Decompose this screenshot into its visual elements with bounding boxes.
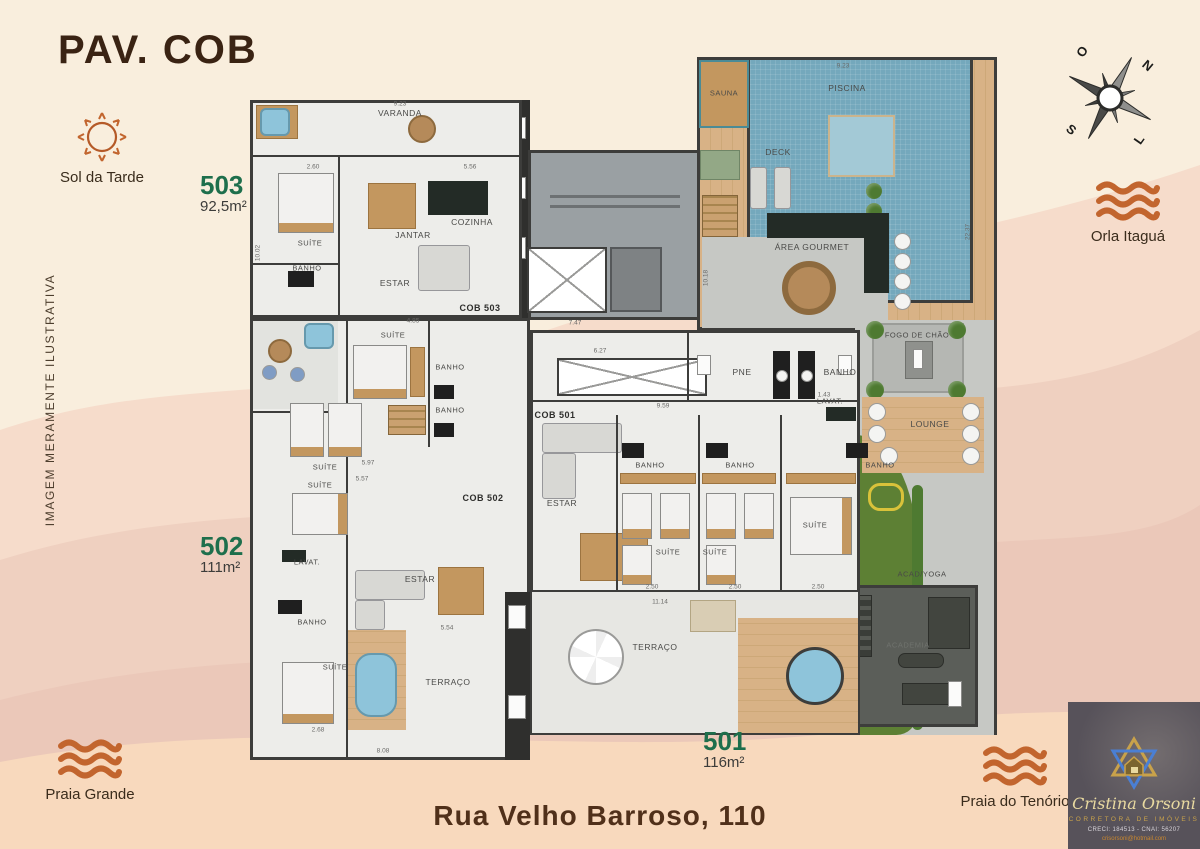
wall xyxy=(780,415,782,590)
wall xyxy=(338,155,340,315)
jacuzzi-502 xyxy=(304,323,334,349)
closet xyxy=(620,473,696,484)
room-label-estar-502: ESTAR xyxy=(405,574,435,584)
dim-label: 11.14 xyxy=(652,599,668,606)
house-icon xyxy=(1125,757,1143,775)
dim-label: 2.50 xyxy=(812,584,825,591)
dim-label: 8.08 xyxy=(377,748,390,755)
room-label-area-gourmet: ÁREA GOURMET xyxy=(775,242,849,252)
dining-table-502 xyxy=(438,567,484,615)
closet xyxy=(702,473,776,484)
balcony-chair xyxy=(290,367,305,382)
twin-bed xyxy=(706,493,736,539)
broker-registry: CRECI: 184513 - CNAI: 56207 xyxy=(1088,827,1181,833)
stairs-502 xyxy=(388,405,426,435)
gym-bench xyxy=(898,653,944,668)
page-title: PAV. COB xyxy=(58,28,258,73)
room-label-banho2-502: BANHO xyxy=(435,406,464,415)
logo-star-icon xyxy=(1103,735,1165,793)
dim-label: 10.02 xyxy=(255,245,262,261)
twin-bed xyxy=(622,545,652,585)
shaft-box xyxy=(508,695,526,719)
balcony-table xyxy=(268,339,292,363)
room-label-banho1-502: BANHO xyxy=(435,363,464,372)
room-label-suite2-502: SUÍTE xyxy=(313,463,338,472)
unit-tag-501: 501 116m² xyxy=(703,728,746,771)
dim-label: 22.37 xyxy=(965,224,972,240)
door-knob xyxy=(776,370,788,382)
dim-label: 5.57 xyxy=(356,476,369,483)
room-label-terraco-502: TERRAÇO xyxy=(425,677,470,687)
landmark-praia-do-tenorio: Praia do Tenório xyxy=(950,745,1080,810)
room-label-fogo-de-chao: FOGO DE CHÃO xyxy=(885,331,949,340)
twin-bed xyxy=(290,403,324,457)
balcony-chair xyxy=(262,365,277,380)
broker-name: Cristina Orsoni xyxy=(1072,795,1196,813)
room-label-banho-503: BANHO xyxy=(292,264,321,273)
bath-fixture xyxy=(434,423,454,437)
bath-fixture xyxy=(288,271,314,287)
waves-icon xyxy=(982,745,1048,787)
sun-lounger xyxy=(774,167,791,209)
wall xyxy=(616,415,618,590)
shaft-box xyxy=(508,605,526,629)
wall xyxy=(533,400,858,402)
broker-tagline: CORRETORA DE IMÓVEIS xyxy=(1069,816,1200,823)
dim-label: 5.54 xyxy=(441,625,454,632)
room-label-deck: DECK xyxy=(765,147,791,157)
sun-lounger xyxy=(750,167,767,209)
room-label-estar-503: ESTAR xyxy=(380,278,410,288)
stair-rail xyxy=(550,205,680,208)
twin-bed xyxy=(660,493,690,539)
dim-label: 1.43 xyxy=(818,392,831,399)
landmark-sol-da-tarde: Sol da Tarde xyxy=(52,105,152,186)
room-label-jantar: JANTAR xyxy=(395,230,430,240)
landmark-orla-itagua: Orla Itaguá xyxy=(1073,180,1183,245)
sofa-502-b xyxy=(355,600,385,630)
room-label-suite-s3: SUÍTE xyxy=(803,521,828,530)
compass-rose: O N S L xyxy=(1055,30,1165,150)
room-label-suite-503: SUÍTE xyxy=(298,239,323,248)
room-label-lavat-502: LAVAT. xyxy=(294,558,320,567)
unit-number: 502 xyxy=(200,533,243,559)
room-label-varanda: VARANDA xyxy=(378,108,422,118)
bed-suite1-502 xyxy=(353,345,407,399)
fire-element xyxy=(913,349,923,369)
stool xyxy=(894,293,911,310)
dim-label: 10.18 xyxy=(703,270,710,286)
bath-fixture xyxy=(846,443,868,458)
room-label-banho-s3: BANHO xyxy=(865,461,894,470)
planter-box xyxy=(690,600,736,632)
jacuzzi-503 xyxy=(260,108,290,136)
waves-icon xyxy=(57,738,123,780)
dim-label: 2.68 xyxy=(312,727,325,734)
twin-bed xyxy=(744,493,774,539)
landmark-praia-grande: Praia Grande xyxy=(35,738,145,803)
toilet-pne xyxy=(697,355,711,375)
dim-label: 5.97 xyxy=(362,460,375,467)
disclaimer-text: IMAGEM MERAMENTE ILUSTRATIVA xyxy=(43,274,57,526)
lavat-counter xyxy=(826,407,856,421)
room-label-suite4-502: SUÍTE xyxy=(323,663,348,672)
room-label-estar-501: ESTAR xyxy=(547,498,577,508)
room-label-suite1-502: SUÍTE xyxy=(381,331,406,340)
wall xyxy=(698,415,700,590)
unit-area: 111m² xyxy=(200,559,243,576)
stair-rail xyxy=(550,195,680,198)
bed-suite3-502 xyxy=(292,493,348,535)
closet xyxy=(786,473,856,484)
room-label-banho3-502: BANHO xyxy=(297,618,326,627)
floorplan: VARANDA SUÍTE JANTAR COZINHA BANHO ESTAR… xyxy=(250,55,998,761)
bed-suite-503 xyxy=(278,173,334,233)
broker-logo: Cristina Orsoni CORRETORA DE IMÓVEIS CRE… xyxy=(1068,702,1200,849)
jacuzzi-501 xyxy=(786,647,844,705)
room-label-cob-502: COB 502 xyxy=(462,493,503,503)
garden-sofa xyxy=(700,150,740,180)
dim-label: 9.23 xyxy=(394,101,407,108)
umbrella-table xyxy=(568,629,624,685)
tree xyxy=(866,321,884,339)
room-label-suite3-502: SUÍTE xyxy=(308,481,333,490)
wall xyxy=(428,321,430,447)
dim-label: 9.23 xyxy=(837,63,850,70)
room-label-academia: ACADEMIA xyxy=(886,641,929,650)
unit-tag-502: 502 111m² xyxy=(200,533,243,576)
kitchen-counter-503 xyxy=(428,181,488,215)
unit-number: 503 xyxy=(200,172,247,198)
room-label-piscina: PISCINA xyxy=(828,83,866,93)
playground xyxy=(868,483,904,511)
sofa-501-b xyxy=(542,453,576,499)
dim-label: 5.56 xyxy=(464,164,477,171)
room-label-sauna: SAUNA xyxy=(710,89,738,98)
room-label-suite-s1: SUÍTE xyxy=(656,548,681,557)
stool xyxy=(894,273,911,290)
pool-spa xyxy=(828,115,895,177)
gourmet-table xyxy=(782,261,836,315)
landmark-label: Praia Grande xyxy=(45,786,134,803)
unit-area: 92,5m² xyxy=(200,198,247,215)
dim-label: 7.47 xyxy=(569,320,582,327)
elevator-shaft-2 xyxy=(610,247,662,312)
dim-label: 4.85 xyxy=(407,318,420,325)
room-label-cob-503: COB 503 xyxy=(459,303,500,313)
lounge-seat xyxy=(962,447,980,465)
bath-fixture xyxy=(434,385,454,399)
lounge-seat xyxy=(962,403,980,421)
dim-label: 2.50 xyxy=(729,584,742,591)
room-label-banho-501: BANHO xyxy=(824,367,857,377)
bath-fixture xyxy=(622,443,644,458)
landmark-label: Orla Itaguá xyxy=(1091,228,1165,245)
access-stairs xyxy=(702,195,738,237)
landmark-label: Sol da Tarde xyxy=(60,169,144,186)
room-label-cob-501: COB 501 xyxy=(534,410,575,420)
room-label-pne: PNE xyxy=(733,367,752,377)
stool xyxy=(894,233,911,250)
varanda-table xyxy=(408,115,436,143)
wall xyxy=(252,155,520,157)
elevator-shaft xyxy=(527,247,607,313)
unit-number: 501 xyxy=(703,728,746,754)
unit-area: 116m² xyxy=(703,754,746,771)
sofa-501-a xyxy=(542,423,622,453)
dim-label: 2.60 xyxy=(307,164,320,171)
dim-label: 9.59 xyxy=(657,403,670,410)
dining-table-503 xyxy=(368,183,416,229)
unit-tag-503: 503 92,5m² xyxy=(200,172,247,215)
room-label-acad-yoga: ACAD/YOGA xyxy=(897,570,946,579)
planter xyxy=(866,183,882,199)
bath-fixture xyxy=(278,600,302,614)
stool xyxy=(894,253,911,270)
dim-label: 6.27 xyxy=(594,348,607,355)
broker-email: crisorsoni@hotmail.com xyxy=(1102,836,1166,842)
room-label-cozinha: COZINHA xyxy=(451,217,493,227)
door-knob xyxy=(801,370,813,382)
lounge-seat xyxy=(962,425,980,443)
room-label-suite-s2: SUÍTE xyxy=(703,548,728,557)
wardrobe xyxy=(410,347,425,397)
bath-fixture xyxy=(706,443,728,458)
tree xyxy=(948,321,966,339)
dim-label: 2.50 xyxy=(646,584,659,591)
gym-machine xyxy=(928,597,970,649)
twin-bed xyxy=(328,403,362,457)
waves-icon xyxy=(1095,180,1161,222)
treadmill-console xyxy=(948,681,962,707)
room-label-lounge: LOUNGE xyxy=(911,419,950,429)
gourmet-counter-l xyxy=(864,213,889,293)
room-label-banho-s1: BANHO xyxy=(635,461,664,470)
lounge-seat xyxy=(868,403,886,421)
room-label-terraco-501: TERRAÇO xyxy=(632,642,677,652)
room-label-banho-s2: BANHO xyxy=(725,461,754,470)
sun-icon xyxy=(70,105,134,169)
wall xyxy=(687,333,689,400)
elevator-hall-501 xyxy=(557,358,707,396)
twin-bed xyxy=(622,493,652,539)
lounge-seat xyxy=(868,425,886,443)
landmark-label: Praia do Tenório xyxy=(961,793,1070,810)
pool-502 xyxy=(355,653,397,717)
sofa-503 xyxy=(418,245,470,291)
